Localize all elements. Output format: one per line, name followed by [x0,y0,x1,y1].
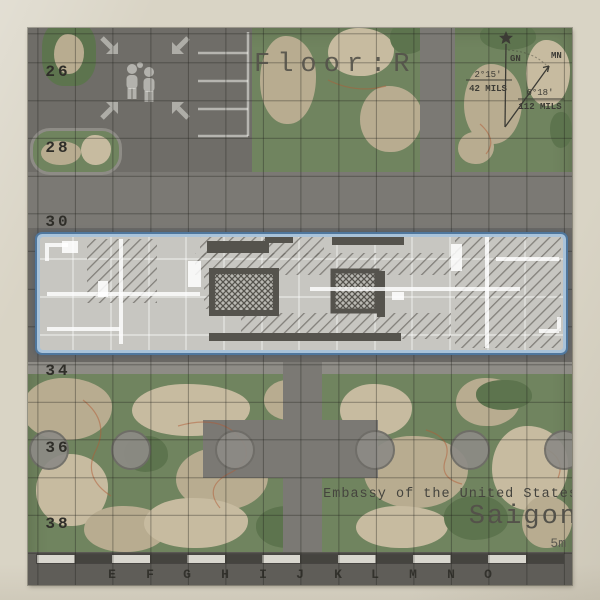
tactical-map[interactable]: E F G H I J K L M N O 26 28 30 34 36 38 [28,28,572,585]
magnetic-north-label: MN [551,51,562,61]
grid-col-label: O [478,567,498,582]
grid-north-label: GN [510,54,521,64]
tree-icon [450,430,490,470]
gn-mils: 42 MILS [469,84,507,94]
arrow-se-icon [102,38,118,54]
map-subtitle: Saigon [158,502,572,532]
grid-row-label: 26 [36,63,80,81]
grid-col-label: L [365,567,385,582]
arrow-nw-icon [172,102,188,118]
grid-col-label: F [140,567,160,582]
grid-col-label: E [102,567,122,582]
coordinate-bar: E F G H I J K L M N O [28,552,572,585]
gn-angle: 2°15' [474,70,501,80]
roof-shafts [212,271,377,313]
grid-row-label: 34 [36,362,80,380]
grid-col-label: G [177,567,197,582]
mn-angle: 6°18' [526,88,553,98]
embassy-building-roof[interactable] [35,232,568,355]
tree-icon [355,430,395,470]
scale-bar [37,555,563,563]
grid-col-label: J [290,567,310,582]
arrow-sw-icon [172,38,188,54]
grid-row-label: 38 [36,515,80,533]
mn-mils: 112 MILS [518,102,562,112]
parking-stalls [198,32,248,136]
grid-col-label: M [403,567,423,582]
grid-col-label: I [253,567,273,582]
map-title: Embassy of the United States [158,487,572,502]
two-people-icon [127,62,155,102]
floor-label[interactable]: Floor:R [254,50,416,80]
scale-label: 5m [550,536,566,551]
declination-diagram: GN MN 2°15' 42 MILS 6°18' 112 MILS [448,28,572,140]
grid-row-label: 36 [36,439,80,457]
true-north-star-icon [499,31,513,44]
tree-icon [111,430,151,470]
grid-row-label: 30 [36,213,80,231]
grid-col-label: N [441,567,461,582]
grid-col-label: H [215,567,235,582]
arrow-ne-icon [102,102,118,118]
roof-plan [40,237,563,350]
grid-col-label: K [328,567,348,582]
tree-icon [215,430,255,470]
grid-row-label: 28 [36,139,80,157]
